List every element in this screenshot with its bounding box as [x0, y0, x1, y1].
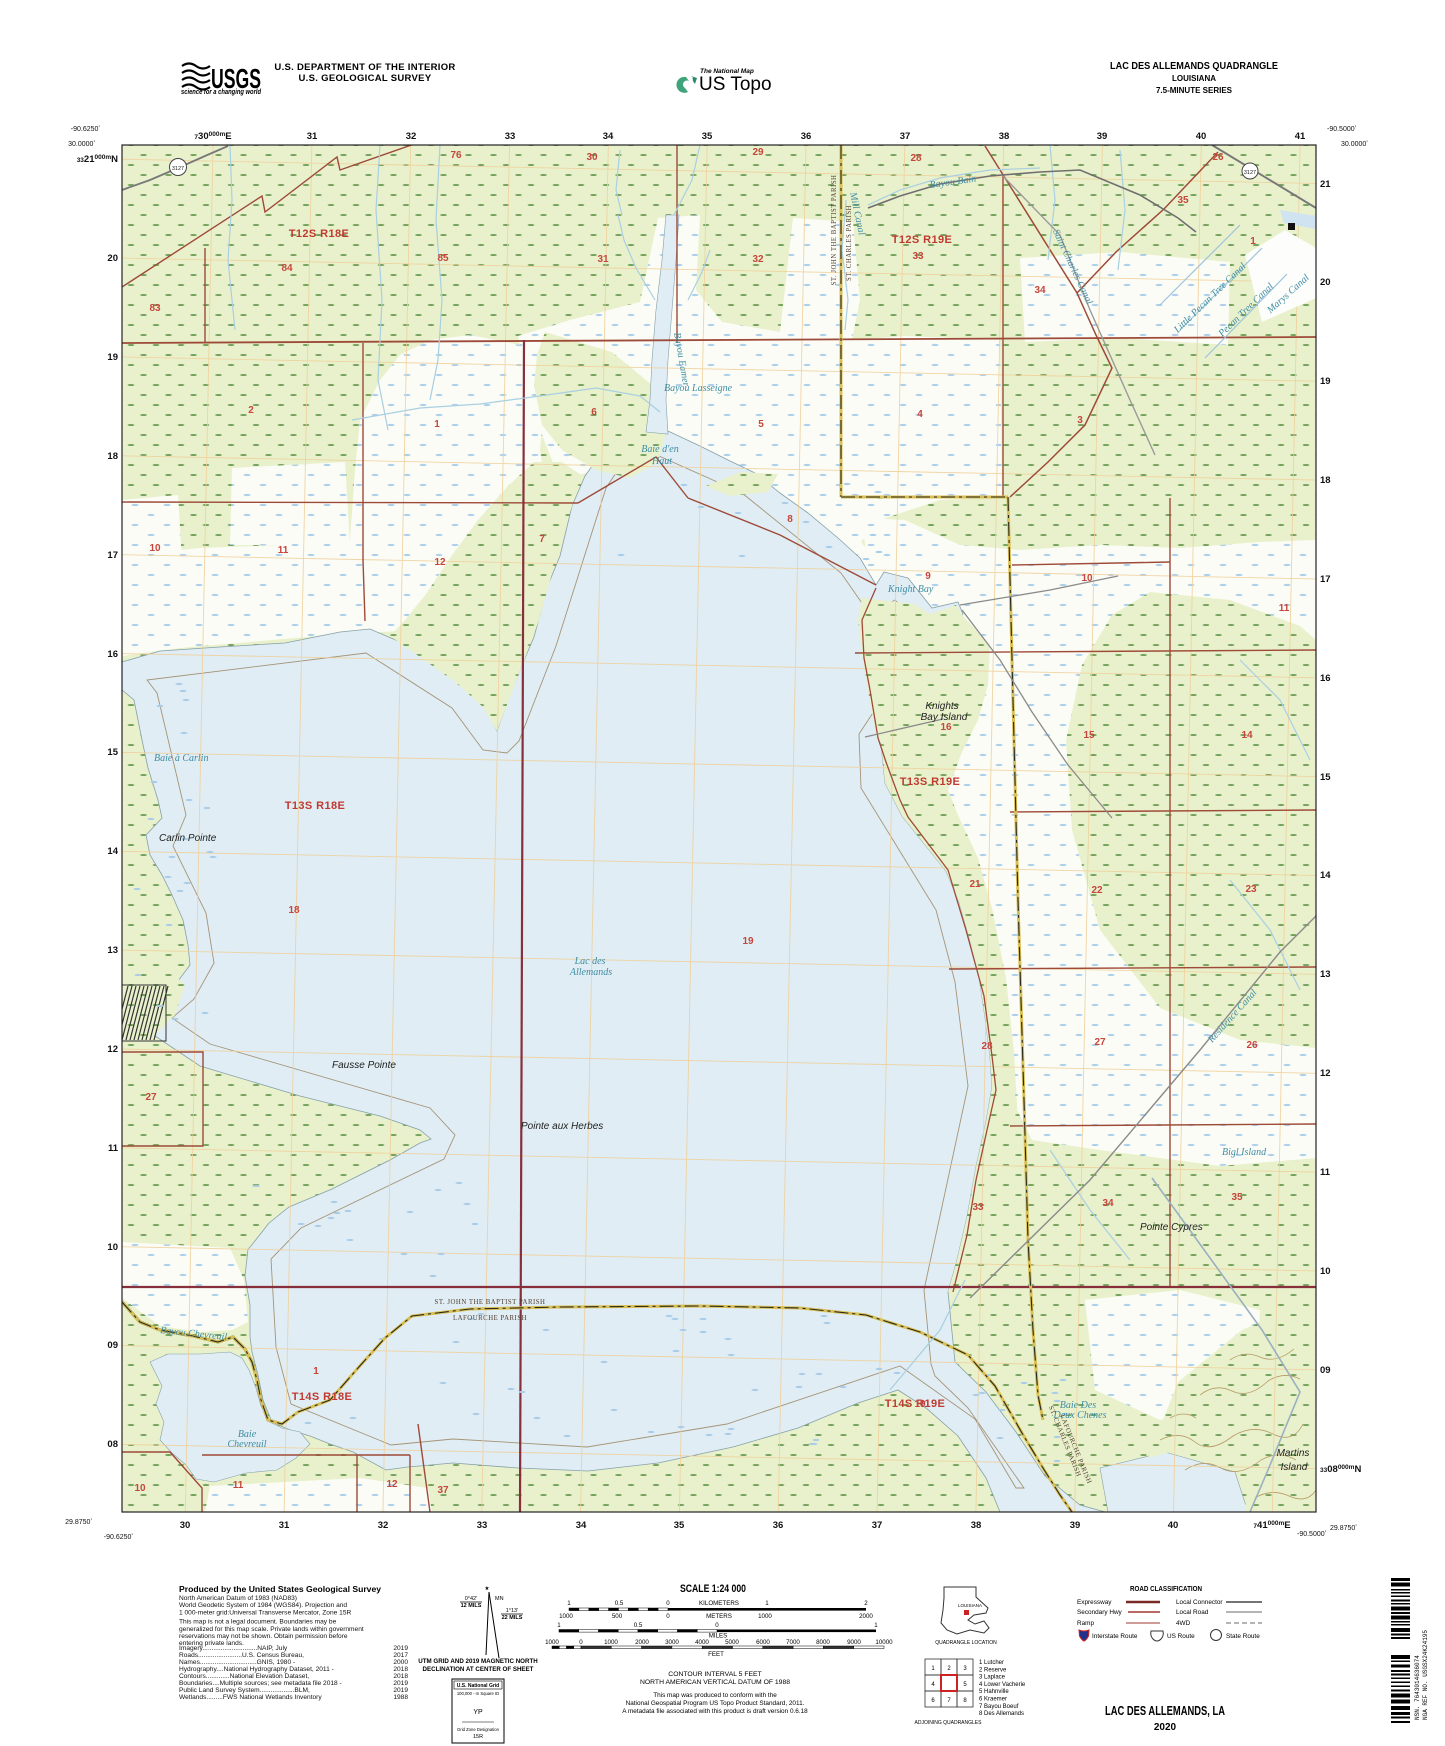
svg-text:1000: 1000 [559, 1613, 573, 1620]
svg-text:Pointe aux Herbes: Pointe aux Herbes [521, 1121, 603, 1132]
svg-text:17: 17 [107, 550, 118, 561]
svg-text:5000: 5000 [725, 1639, 739, 1646]
svg-text:18: 18 [1320, 475, 1331, 486]
svg-text:11: 11 [1279, 603, 1290, 614]
svg-text:9: 9 [925, 571, 931, 582]
svg-text:12: 12 [1320, 1068, 1331, 1079]
svg-text:26: 26 [1212, 152, 1224, 163]
svg-text:1000: 1000 [545, 1639, 559, 1646]
svg-text:NGA REF NO. USGSX24K24195: NGA REF NO. USGSX24K24195 [1422, 1630, 1429, 1720]
svg-text:ST. JOHN THE BAPTIST PARISH: ST. JOHN THE BAPTIST PARISH [435, 1299, 546, 1306]
svg-text:LAC DES ALLEMANDS QUADRANGLE: LAC DES ALLEMANDS QUADRANGLE [1110, 60, 1278, 72]
svg-text:31: 31 [597, 254, 609, 265]
svg-text:32: 32 [406, 131, 417, 142]
svg-text:ROAD CLASSIFICATION: ROAD CLASSIFICATION [1130, 1586, 1202, 1593]
svg-text:37: 37 [872, 1520, 883, 1531]
svg-text:30: 30 [586, 152, 598, 163]
svg-text:U.S. GEOLOGICAL SURVEY: U.S. GEOLOGICAL SURVEY [299, 73, 432, 84]
svg-text:2018: 2018 [393, 1673, 408, 1680]
svg-text:Allemands: Allemands [569, 967, 612, 978]
svg-text:36: 36 [801, 131, 812, 142]
svg-text:1 Lutcher: 1 Lutcher [979, 1660, 1004, 1666]
svg-text:6000: 6000 [756, 1639, 770, 1646]
svg-text:LOUISIANA: LOUISIANA [1172, 74, 1216, 83]
svg-text:35: 35 [702, 131, 713, 142]
svg-text:3 Laplace: 3 Laplace [979, 1675, 1006, 1681]
svg-text:Martins: Martins [1277, 1448, 1310, 1459]
svg-text:500: 500 [612, 1613, 623, 1620]
svg-text:15: 15 [107, 747, 118, 758]
svg-text:1000: 1000 [758, 1613, 772, 1620]
svg-text:Lac des: Lac des [574, 956, 606, 967]
svg-text:9000: 9000 [847, 1639, 861, 1646]
svg-text:10: 10 [107, 1242, 118, 1253]
svg-text:7 Bayou Boeuf: 7 Bayou Boeuf [979, 1704, 1019, 1710]
svg-text:FEET: FEET [708, 1651, 724, 1658]
svg-text:7000: 7000 [786, 1639, 800, 1646]
svg-text:730000mE: 730000mE [194, 131, 231, 142]
svg-text:Interstate Route: Interstate Route [1092, 1633, 1138, 1640]
svg-text:This map was produced to confo: This map was produced to conform with th… [653, 1692, 777, 1699]
svg-text:reservations may not be shown.: reservations may not be shown. Obtain pe… [179, 1633, 348, 1640]
svg-text:15: 15 [1320, 772, 1331, 783]
svg-text:29.8750ʼ: 29.8750ʼ [65, 1518, 92, 1526]
svg-text:2017: 2017 [393, 1652, 408, 1659]
svg-text:8: 8 [963, 1698, 967, 1704]
svg-text:Bayou Lasseigne: Bayou Lasseigne [664, 383, 733, 394]
svg-text:1: 1 [1250, 236, 1256, 247]
svg-text:11: 11 [1320, 1167, 1331, 1178]
svg-text:22 MILS: 22 MILS [502, 1615, 523, 1621]
svg-text:1: 1 [567, 1600, 571, 1607]
svg-text:31: 31 [307, 131, 318, 142]
svg-text:5: 5 [758, 419, 764, 430]
svg-text:0: 0 [715, 1622, 719, 1629]
svg-text:Local Connector: Local Connector [1176, 1599, 1223, 1606]
svg-text:33: 33 [912, 251, 924, 262]
svg-text:4000: 4000 [695, 1639, 709, 1646]
svg-text:Ramp: Ramp [1077, 1620, 1094, 1627]
svg-text:8 Des Allemands: 8 Des Allemands [979, 1711, 1024, 1717]
svg-text:12: 12 [434, 557, 446, 568]
svg-text:15R: 15R [473, 1734, 483, 1740]
svg-text:83: 83 [149, 303, 161, 314]
svg-text:Island: Island [1281, 1462, 1308, 1473]
svg-text:14: 14 [1241, 730, 1253, 741]
svg-text:Haut: Haut [651, 456, 672, 467]
svg-text:4 Lower Vacherie: 4 Lower Vacherie [979, 1682, 1026, 1688]
svg-text:CONTOUR INTERVAL 5 FEET: CONTOUR INTERVAL 5 FEET [668, 1671, 761, 1678]
svg-text:science for a changing world: science for a changing world [181, 89, 262, 96]
svg-text:ST. CHARLES PARISH: ST. CHARLES PARISH [846, 205, 853, 281]
svg-text:World Geodetic System of 1984: World Geodetic System of 1984 (WGS84). P… [179, 1602, 347, 1609]
svg-text:UTM GRID AND 2019 MAGNETIC NOR: UTM GRID AND 2019 MAGNETIC NORTH [418, 1658, 538, 1665]
svg-text:0.5: 0.5 [615, 1600, 624, 1607]
svg-text:34: 34 [1102, 1198, 1114, 1209]
svg-text:US Route: US Route [1167, 1633, 1195, 1640]
svg-text:19: 19 [742, 936, 754, 947]
svg-text:2: 2 [947, 1666, 951, 1672]
svg-text:MN: MN [495, 1596, 504, 1602]
svg-text:30.0000ʼ: 30.0000ʼ [68, 140, 95, 148]
svg-text:QUADRANGLE LOCATION: QUADRANGLE LOCATION [935, 1640, 997, 1646]
svg-text:28: 28 [981, 1041, 993, 1052]
svg-text:38: 38 [971, 1520, 982, 1531]
svg-text:2020: 2020 [1154, 1722, 1177, 1733]
svg-text:38: 38 [999, 131, 1010, 142]
svg-text:Wetlands.........FWS National: Wetlands.........FWS National Wetlands I… [179, 1694, 322, 1701]
svg-text:1000: 1000 [604, 1639, 618, 1646]
svg-text:3000: 3000 [665, 1639, 679, 1646]
svg-text:0: 0 [666, 1600, 670, 1607]
svg-text:2019: 2019 [393, 1680, 408, 1687]
svg-text:T12S R19E: T12S R19E [892, 234, 952, 246]
svg-text:14: 14 [1320, 870, 1331, 881]
svg-text:13: 13 [1320, 969, 1331, 980]
svg-text:U.S. National Grid: U.S. National Grid [457, 1683, 500, 1689]
svg-text:29: 29 [752, 147, 764, 158]
svg-text:5: 5 [963, 1682, 967, 1688]
svg-text:35: 35 [1177, 195, 1189, 206]
svg-text:2: 2 [248, 405, 254, 416]
svg-text:10: 10 [149, 543, 161, 554]
svg-text:37: 37 [900, 131, 911, 142]
svg-text:18: 18 [107, 451, 118, 462]
svg-text:T13S R18E: T13S R18E [285, 800, 345, 812]
svg-text:12: 12 [386, 1479, 398, 1490]
svg-text:36: 36 [773, 1520, 784, 1531]
svg-text:Fausse Pointe: Fausse Pointe [332, 1060, 396, 1071]
svg-text:21: 21 [1320, 179, 1331, 190]
svg-text:1: 1 [931, 1666, 935, 1672]
svg-text:North American Datum of 1983 (: North American Datum of 1983 (NAD83) [179, 1595, 297, 1602]
svg-text:41: 41 [1295, 131, 1306, 142]
svg-text:22: 22 [1091, 885, 1103, 896]
svg-text:YP: YP [473, 1709, 483, 1716]
svg-text:generalized for this map scale: generalized for this map scale. Private … [179, 1626, 364, 1633]
svg-text:-90.6250ʼ: -90.6250ʼ [104, 1533, 134, 1541]
svg-text:0: 0 [666, 1613, 670, 1620]
svg-text:16: 16 [1320, 673, 1331, 684]
svg-text:33: 33 [477, 1520, 488, 1531]
svg-text:Contours.............National: Contours.............National Elevation … [179, 1673, 309, 1680]
svg-text:7.5-MINUTE SERIES: 7.5-MINUTE SERIES [1156, 86, 1233, 95]
svg-text:★: ★ [485, 1585, 490, 1592]
svg-text:11: 11 [233, 1480, 244, 1491]
svg-text:35: 35 [674, 1520, 685, 1531]
svg-text:1: 1 [434, 419, 440, 430]
svg-text:2000: 2000 [859, 1613, 873, 1620]
svg-text:2000: 2000 [635, 1639, 649, 1646]
svg-text:32: 32 [378, 1520, 389, 1531]
svg-text:34: 34 [576, 1520, 587, 1531]
svg-text:Carlin Pointe: Carlin Pointe [159, 833, 217, 844]
svg-text:1: 1 [765, 1600, 769, 1607]
svg-text:This map is not a legal docume: This map is not a legal document. Bounda… [179, 1619, 337, 1626]
svg-text:Names.........................: Names...............................GNIS… [179, 1659, 295, 1666]
svg-text:Knight Bay: Knight Bay [887, 584, 934, 595]
svg-text:08: 08 [107, 1439, 118, 1450]
svg-text:30: 30 [180, 1520, 191, 1531]
svg-text:A metadata file associated wit: A metadata file associated with this pro… [622, 1708, 808, 1715]
svg-text:17: 17 [1320, 574, 1331, 585]
svg-text:T12S R18E: T12S R18E [289, 228, 349, 240]
svg-text:Grid Zone Designation: Grid Zone Designation [457, 1727, 500, 1732]
svg-text:76: 76 [450, 150, 462, 161]
svg-text:13: 13 [107, 945, 118, 956]
svg-text:18: 18 [288, 905, 300, 916]
svg-text:METERS: METERS [706, 1613, 732, 1620]
svg-text:0°42ʼ: 0°42ʼ [465, 1596, 478, 1602]
svg-text:2 Reserve: 2 Reserve [979, 1667, 1007, 1673]
svg-text:-90.6250ʼ: -90.6250ʼ [71, 125, 101, 133]
svg-text:Bay Island: Bay Island [921, 712, 968, 723]
svg-text:LAFOURCHE PARISH: LAFOURCHE PARISH [453, 1315, 527, 1322]
svg-text:-90.5000ʼ: -90.5000ʼ [1297, 1530, 1327, 1538]
svg-text:2: 2 [864, 1600, 868, 1607]
svg-text:Public Land Survey System.....: Public Land Survey System...............… [179, 1687, 310, 1694]
svg-text:19: 19 [107, 352, 118, 363]
svg-text:Roads........................U: Roads........................U.S. Census… [179, 1652, 304, 1659]
svg-text:LOUISIANA: LOUISIANA [958, 1603, 982, 1608]
svg-text:2019: 2019 [393, 1645, 408, 1652]
svg-text:-90.5000ʼ: -90.5000ʼ [1327, 125, 1357, 133]
svg-text:Imagery.......................: Imagery..............................NAI… [179, 1645, 288, 1652]
svg-text:6: 6 [931, 1698, 935, 1704]
svg-text:12: 12 [107, 1044, 118, 1055]
svg-text:14: 14 [107, 846, 118, 857]
svg-text:4: 4 [931, 1682, 935, 1688]
svg-text:35: 35 [1231, 1192, 1243, 1203]
svg-text:84: 84 [281, 263, 293, 274]
svg-text:Pointe Cypres: Pointe Cypres [1140, 1222, 1203, 1233]
svg-text:40: 40 [1196, 131, 1207, 142]
svg-text:85: 85 [437, 253, 449, 264]
svg-text:3127: 3127 [1244, 170, 1256, 176]
svg-text:NSN. 7643014636074: NSN. 7643014636074 [1414, 1655, 1421, 1720]
svg-text:3127: 3127 [172, 166, 184, 172]
svg-text:ST. JOHN THE BAPTIST PARISH: ST. JOHN THE BAPTIST PARISH [831, 175, 838, 286]
svg-text:1: 1 [874, 1622, 878, 1629]
svg-text:16: 16 [107, 649, 118, 660]
svg-text:5 Hahnville: 5 Hahnville [979, 1689, 1009, 1695]
svg-text:2018: 2018 [393, 1666, 408, 1673]
svg-text:Secondary Hwy: Secondary Hwy [1077, 1609, 1123, 1616]
svg-text:20: 20 [1320, 277, 1331, 288]
svg-text:10: 10 [134, 1483, 146, 1494]
svg-text:20: 20 [107, 253, 118, 264]
svg-text:37: 37 [437, 1485, 449, 1496]
svg-text:33: 33 [505, 131, 516, 142]
svg-text:15: 15 [1083, 730, 1095, 741]
svg-text:Baie d'en: Baie d'en [641, 444, 678, 455]
svg-text:3308000mN: 3308000mN [1320, 1464, 1361, 1475]
svg-text:16: 16 [940, 722, 952, 733]
svg-text:7: 7 [947, 1698, 951, 1704]
svg-text:3321000mN: 3321000mN [77, 154, 118, 165]
svg-text:09: 09 [107, 1340, 118, 1351]
svg-text:28: 28 [910, 153, 922, 164]
svg-text:Produced by the United States: Produced by the United States Geological… [179, 1584, 381, 1594]
svg-text:US Topo: US Topo [699, 74, 772, 95]
svg-text:39: 39 [1070, 1520, 1081, 1531]
svg-text:27: 27 [1094, 1037, 1106, 1048]
svg-text:19: 19 [1320, 376, 1331, 387]
svg-text:6: 6 [591, 407, 597, 418]
svg-text:3: 3 [963, 1666, 967, 1672]
svg-text:34: 34 [603, 131, 614, 142]
svg-text:19: 19 [914, 1399, 926, 1410]
svg-text:Expressway: Expressway [1077, 1599, 1112, 1606]
svg-text:0: 0 [579, 1639, 583, 1646]
svg-text:741000mE: 741000mE [1253, 1520, 1290, 1531]
svg-text:1988: 1988 [393, 1694, 408, 1701]
svg-text:10: 10 [1320, 1266, 1331, 1277]
svg-text:30.0000ʼ: 30.0000ʼ [1341, 140, 1368, 148]
svg-text:23: 23 [1245, 884, 1257, 895]
svg-text:7: 7 [539, 534, 545, 545]
svg-text:Hydrography....National Hydrog: Hydrography....National Hydrography Data… [179, 1666, 334, 1673]
svg-text:40: 40 [1168, 1520, 1179, 1531]
svg-text:1: 1 [313, 1366, 319, 1377]
svg-text:100,000 - m Square ID: 100,000 - m Square ID [457, 1691, 499, 1696]
svg-text:2019: 2019 [393, 1687, 408, 1694]
svg-text:Boundaries....Multiple sources: Boundaries....Multiple sources; see meta… [179, 1680, 342, 1687]
svg-text:8: 8 [787, 514, 793, 525]
svg-text:1°13ʼ: 1°13ʼ [506, 1608, 519, 1614]
svg-text:1: 1 [557, 1622, 561, 1629]
svg-text:33: 33 [972, 1202, 984, 1213]
svg-text:29.8750ʼ: 29.8750ʼ [1330, 1524, 1357, 1532]
svg-text:State Route: State Route [1226, 1633, 1260, 1640]
svg-text:LAC DES ALLEMANDS, LA: LAC DES ALLEMANDS, LA [1105, 1704, 1225, 1718]
svg-text:U.S. DEPARTMENT OF THE INTERIO: U.S. DEPARTMENT OF THE INTERIOR [274, 62, 455, 73]
svg-text:6 Kraemer: 6 Kraemer [979, 1697, 1007, 1703]
svg-text:1 000-meter grid:Universal Tra: 1 000-meter grid:Universal Transverse Me… [179, 1609, 351, 1616]
svg-text:31: 31 [279, 1520, 290, 1531]
svg-text:12 MILS: 12 MILS [461, 1603, 482, 1609]
svg-text:Local Road: Local Road [1176, 1609, 1209, 1616]
svg-text:KILOMETERS: KILOMETERS [699, 1600, 739, 1607]
svg-text:34: 34 [1034, 285, 1046, 296]
svg-text:T13S R19E: T13S R19E [900, 776, 960, 788]
svg-text:Chevreuil: Chevreuil [227, 1439, 266, 1450]
svg-text:Baie à Carlin: Baie à Carlin [154, 753, 208, 764]
svg-text:8000: 8000 [816, 1639, 830, 1646]
svg-text:Bigl Island: Bigl Island [1222, 1147, 1267, 1158]
svg-text:21: 21 [969, 879, 981, 890]
svg-text:NORTH AMERICAN VERTICAL DATUM: NORTH AMERICAN VERTICAL DATUM OF 1988 [640, 1679, 790, 1686]
svg-text:11: 11 [108, 1143, 119, 1154]
svg-text:32: 32 [752, 254, 764, 265]
svg-text:39: 39 [1097, 131, 1108, 142]
svg-text:3: 3 [1077, 415, 1083, 426]
svg-text:0.5: 0.5 [634, 1622, 643, 1629]
svg-text:Knights: Knights [925, 701, 958, 712]
svg-text:ADJOINING QUADRANGLES: ADJOINING QUADRANGLES [915, 1720, 983, 1726]
svg-text:27: 27 [145, 1092, 157, 1103]
svg-text:11: 11 [278, 545, 289, 556]
svg-text:4: 4 [917, 409, 923, 420]
svg-text:26: 26 [1246, 1040, 1258, 1051]
svg-text:T14S R18E: T14S R18E [292, 1391, 352, 1403]
svg-text:SCALE 1:24 000: SCALE 1:24 000 [680, 1583, 746, 1595]
svg-text:09: 09 [1320, 1365, 1331, 1376]
svg-text:4WD: 4WD [1176, 1620, 1191, 1627]
svg-text:10000: 10000 [875, 1639, 893, 1646]
svg-text:2000: 2000 [393, 1659, 408, 1666]
svg-text:National Geospatial Program US: National Geospatial Program US Topo Prod… [626, 1700, 805, 1707]
svg-text:10: 10 [1081, 573, 1093, 584]
svg-text:DECLINATION AT CENTER OF SHEET: DECLINATION AT CENTER OF SHEET [423, 1666, 534, 1673]
